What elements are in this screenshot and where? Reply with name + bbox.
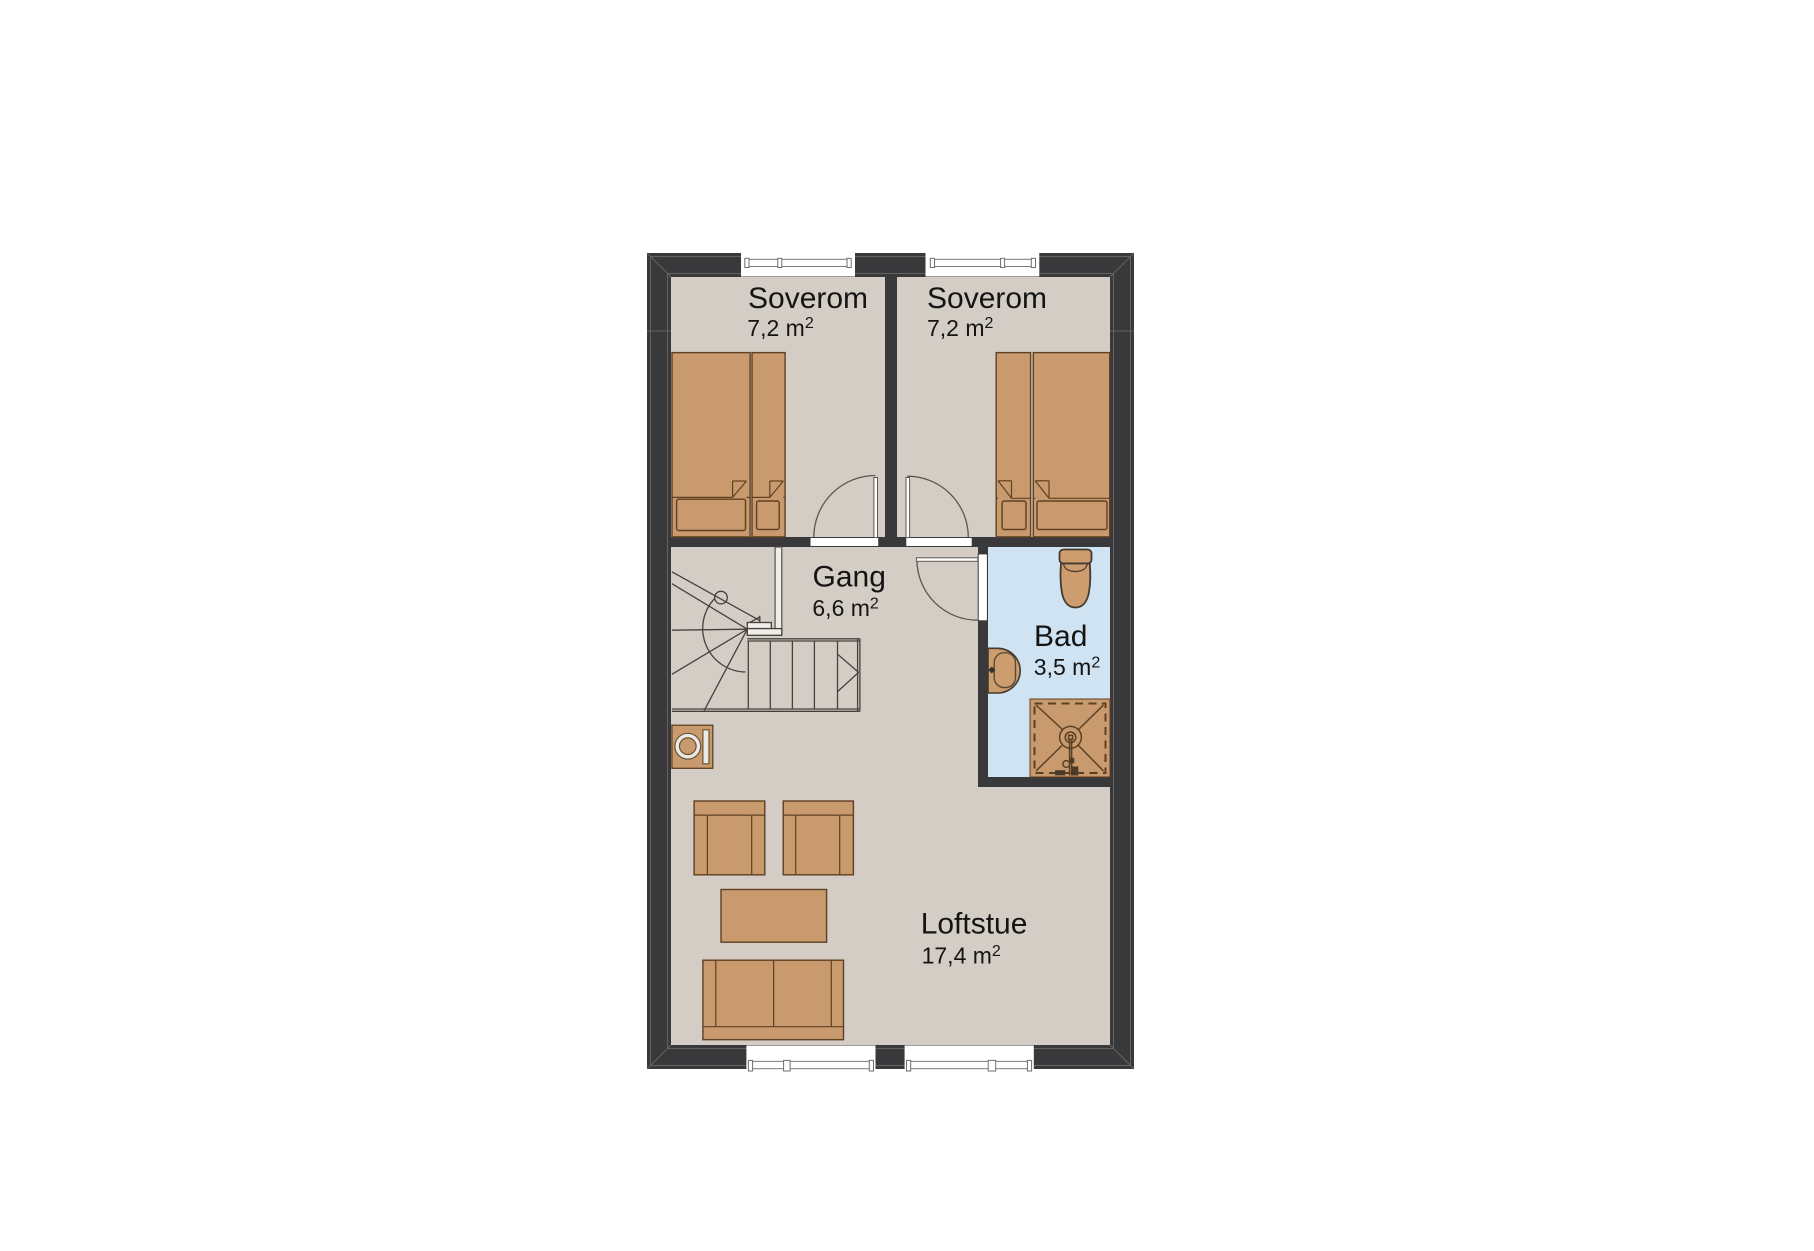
svg-text:Bad: Bad — [1034, 620, 1087, 653]
svg-text:Soverom: Soverom — [748, 282, 868, 315]
svg-text:3,5 m2: 3,5 m2 — [1034, 654, 1101, 680]
svg-text:Gang: Gang — [813, 561, 886, 594]
svg-text:17,4 m2: 17,4 m2 — [922, 943, 1001, 969]
svg-text:Soverom: Soverom — [927, 282, 1047, 315]
svg-text:7,2 m2: 7,2 m2 — [927, 315, 994, 341]
svg-text:6,6 m2: 6,6 m2 — [812, 595, 879, 621]
svg-text:7,2 m2: 7,2 m2 — [747, 315, 814, 341]
svg-text:Loftstue: Loftstue — [921, 908, 1028, 941]
